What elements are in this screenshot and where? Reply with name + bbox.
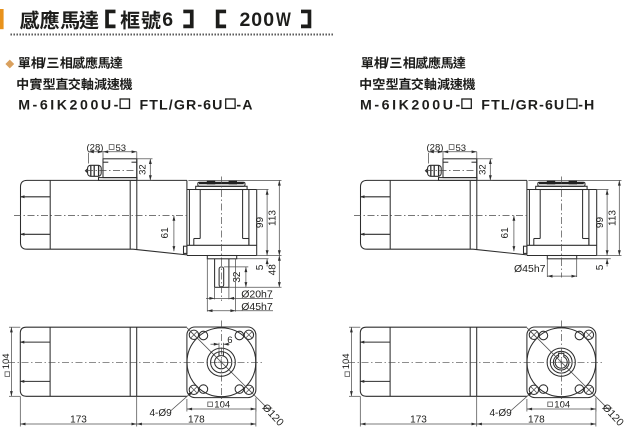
svg-text:5: 5: [255, 264, 266, 270]
svg-text:6: 6: [162, 9, 173, 31]
svg-text:113: 113: [267, 210, 278, 226]
svg-text:-A: -A: [236, 97, 253, 113]
svg-text:0: 0: [251, 9, 262, 31]
svg-text:32: 32: [232, 271, 243, 283]
svg-text:Ø120: Ø120: [260, 402, 286, 429]
svg-text:104: 104: [214, 400, 230, 411]
svg-text:W: W: [276, 9, 291, 31]
svg-text:Ø45h7: Ø45h7: [241, 301, 273, 313]
svg-text:0: 0: [263, 9, 274, 31]
svg-text:173: 173: [70, 414, 87, 425]
svg-text:4-Ø9: 4-Ø9: [150, 408, 173, 419]
svg-text:6: 6: [227, 335, 232, 346]
svg-text:48: 48: [267, 264, 278, 276]
svg-text:M-6IK200U-: M-6IK200U-: [360, 97, 463, 113]
svg-text:Ø20h7: Ø20h7: [241, 289, 273, 301]
svg-text:32: 32: [138, 164, 149, 175]
svg-text:53: 53: [116, 143, 127, 154]
svg-text:178: 178: [188, 414, 205, 425]
svg-text:/: /: [385, 55, 389, 70]
svg-text:2: 2: [240, 9, 251, 31]
svg-text:-H: -H: [578, 97, 595, 113]
svg-text:FTL/GR-6U: FTL/GR-6U: [140, 97, 224, 113]
svg-text:61: 61: [160, 227, 171, 239]
svg-text:/: /: [42, 55, 46, 70]
svg-text:104: 104: [1, 353, 12, 369]
svg-text:M-6IK200U-: M-6IK200U-: [18, 97, 121, 113]
svg-text:FTL/GR-6U: FTL/GR-6U: [481, 97, 565, 113]
svg-text:Ø45h7: Ø45h7: [514, 263, 546, 275]
svg-text:99: 99: [255, 217, 266, 229]
